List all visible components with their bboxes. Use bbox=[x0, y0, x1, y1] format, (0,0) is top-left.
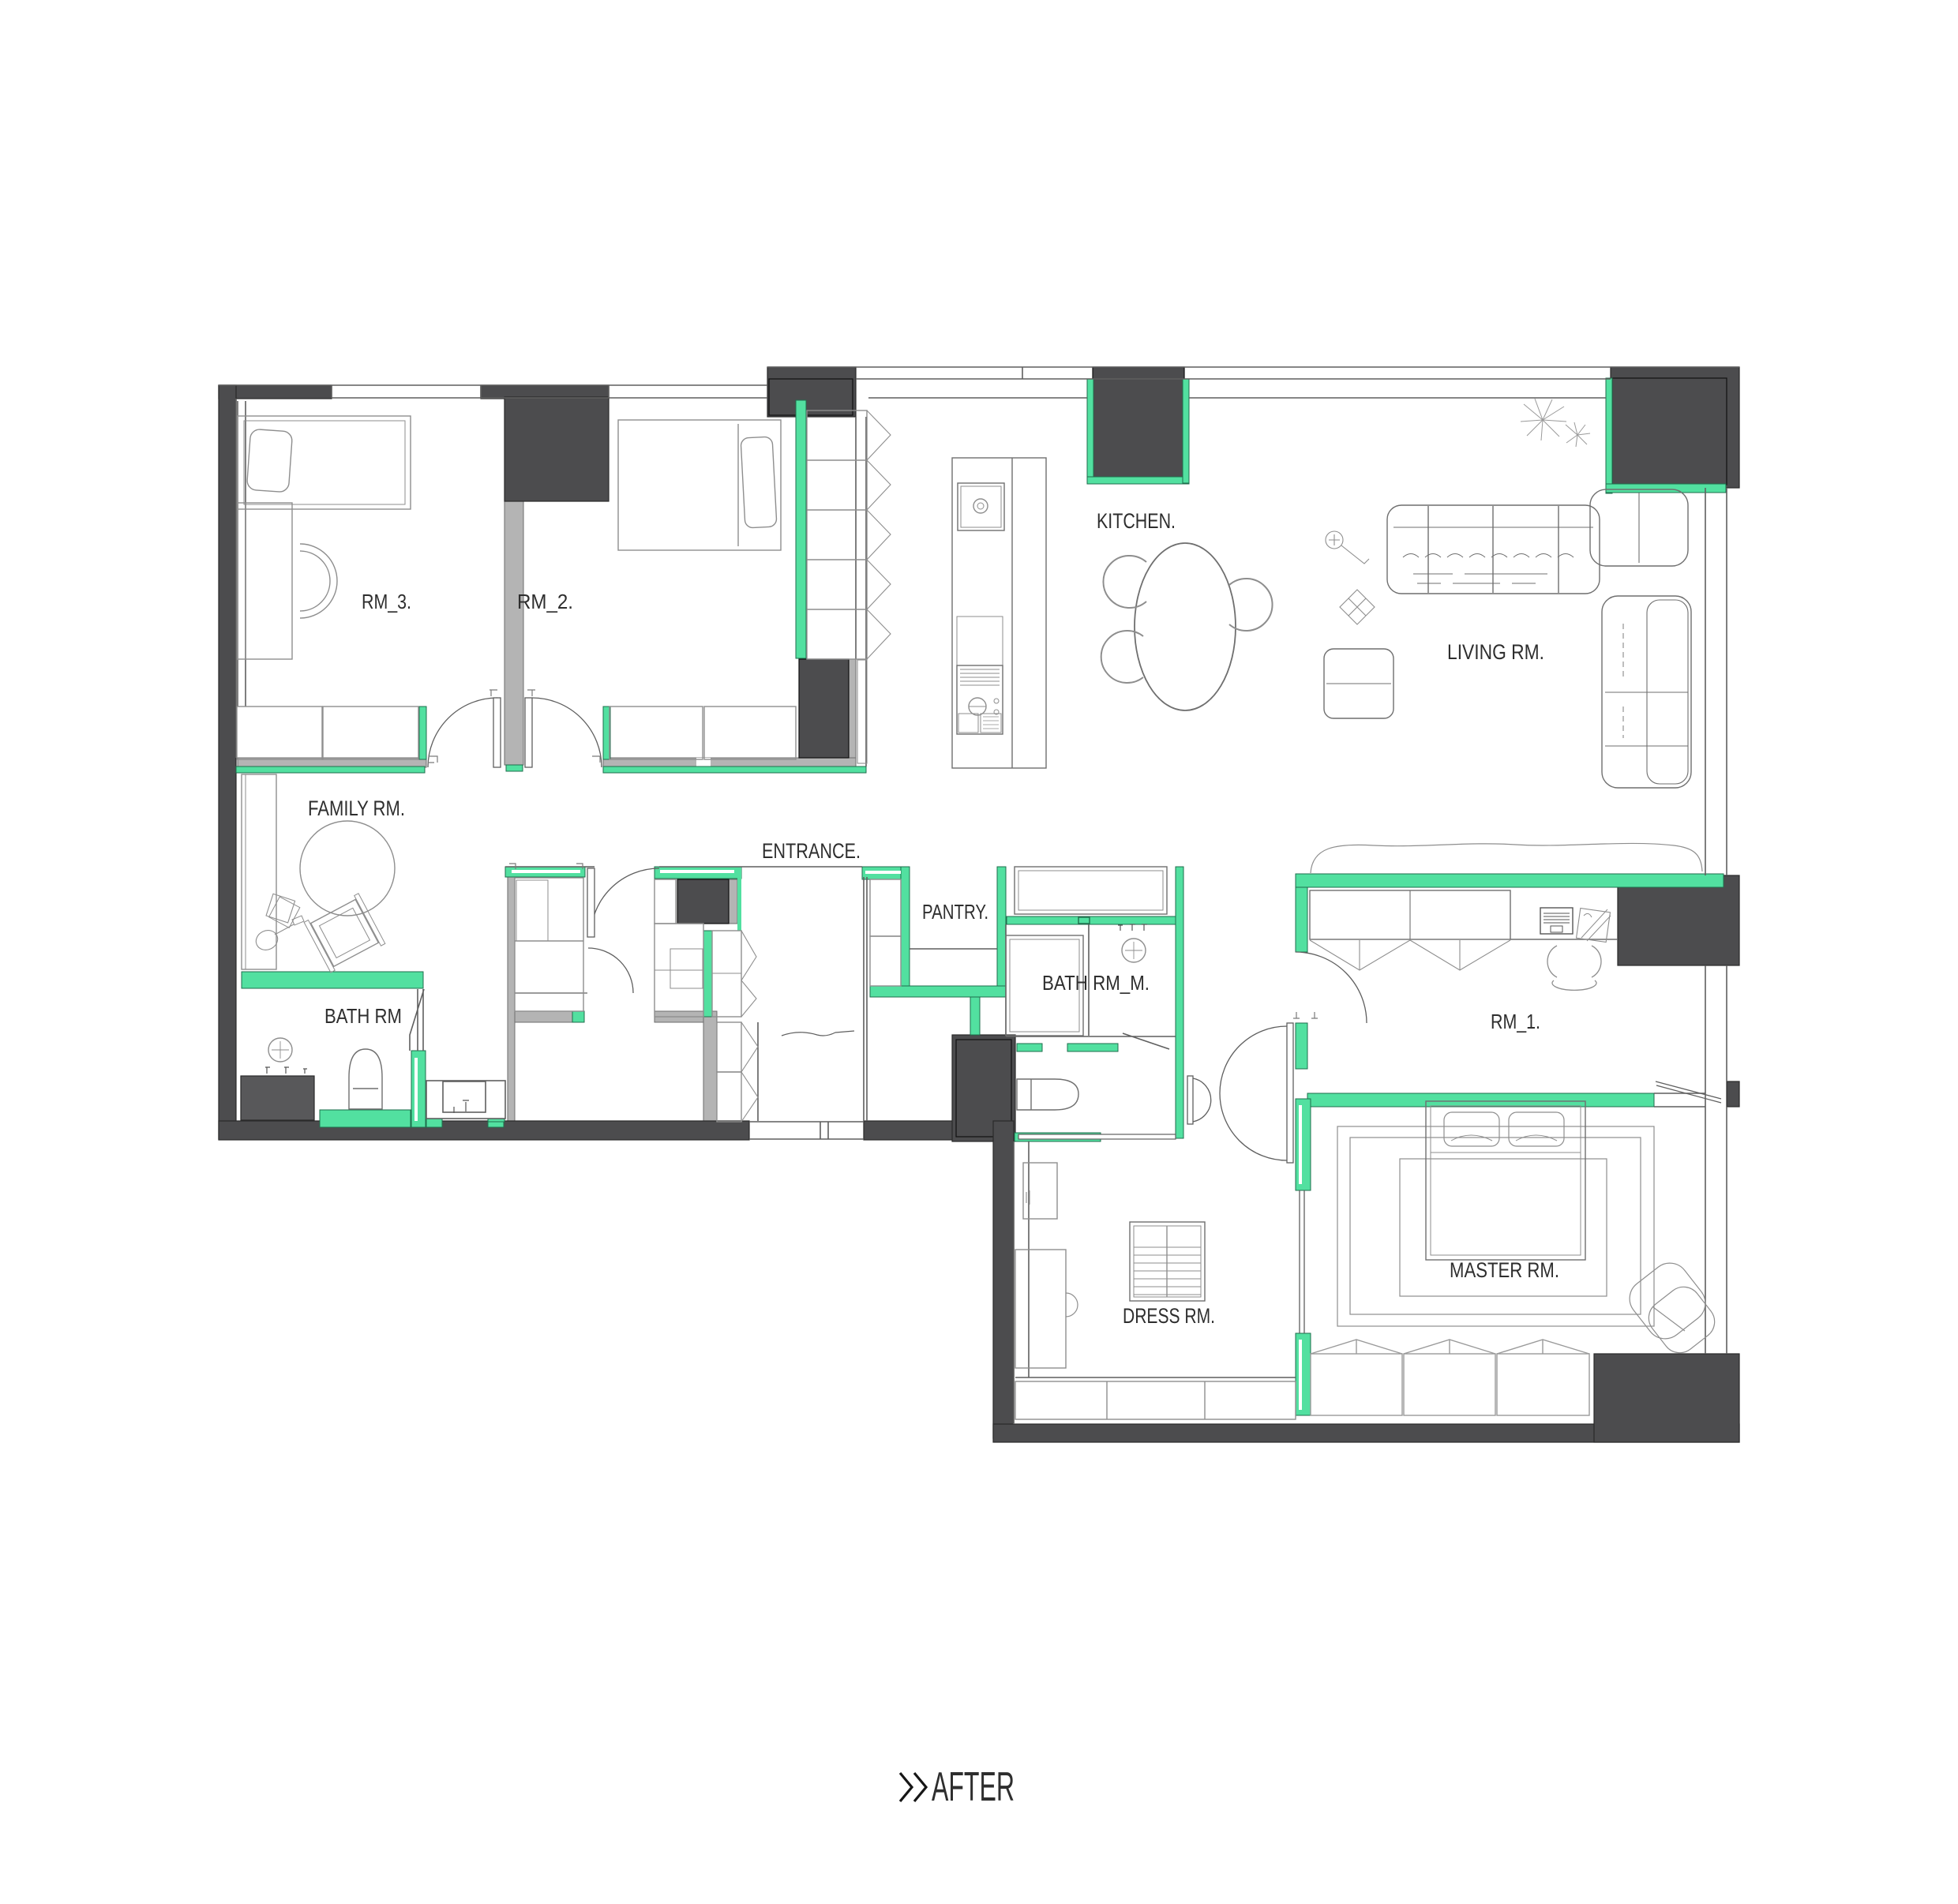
svg-text:AFTER: AFTER bbox=[932, 1764, 1015, 1810]
svg-text:KITCHEN.: KITCHEN. bbox=[1097, 509, 1176, 533]
svg-text:RM_2.: RM_2. bbox=[517, 590, 573, 613]
svg-text:BATH RM: BATH RM bbox=[324, 1004, 402, 1028]
svg-text:LIVING RM.: LIVING RM. bbox=[1447, 640, 1544, 664]
svg-text:MASTER RM.: MASTER RM. bbox=[1450, 1258, 1559, 1282]
svg-text:PANTRY.: PANTRY. bbox=[922, 900, 988, 924]
svg-text:ENTRANCE.: ENTRANCE. bbox=[762, 839, 861, 863]
svg-text:DRESS RM.: DRESS RM. bbox=[1123, 1304, 1215, 1328]
svg-text:FAMILY RM.: FAMILY RM. bbox=[308, 796, 405, 820]
svg-text:BATH RM_M.: BATH RM_M. bbox=[1042, 971, 1150, 995]
svg-text:RM_3.: RM_3. bbox=[362, 590, 411, 613]
svg-text:RM_1.: RM_1. bbox=[1491, 1010, 1540, 1033]
